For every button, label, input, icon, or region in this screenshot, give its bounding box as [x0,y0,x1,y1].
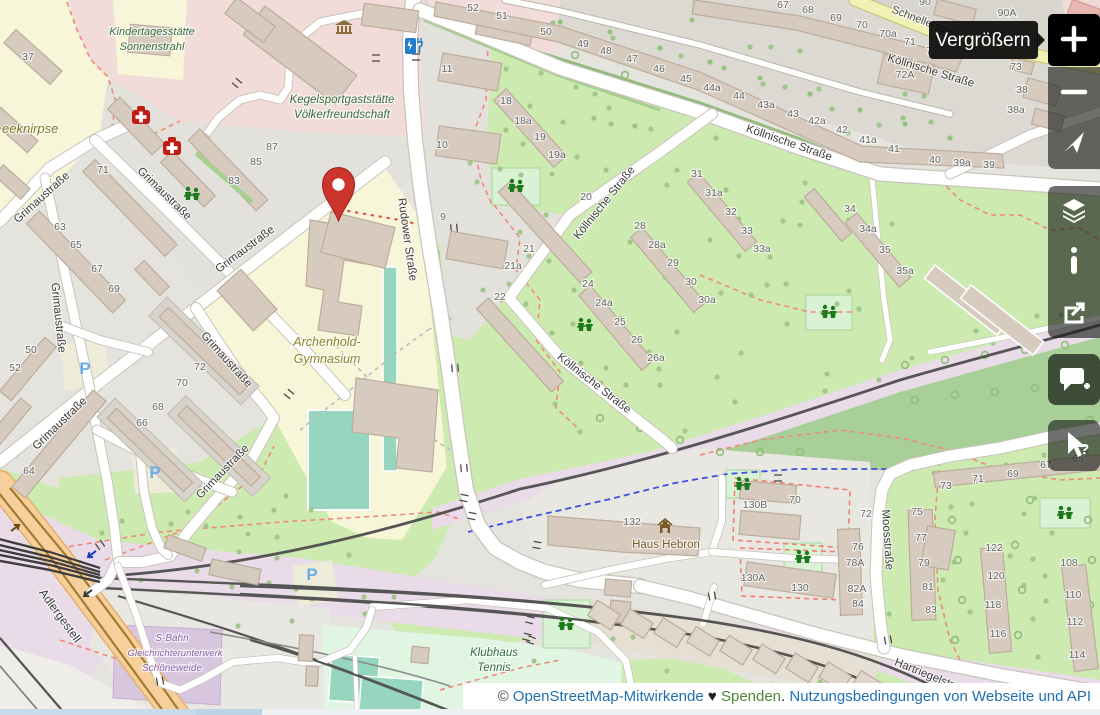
svg-text:43: 43 [787,108,799,120]
svg-text:9: 9 [440,211,446,223]
svg-text:76: 76 [852,541,864,553]
svg-text:40: 40 [929,154,941,166]
svg-text:84: 84 [852,598,864,610]
svg-text:72: 72 [194,361,206,373]
svg-text:37: 37 [22,51,34,63]
svg-text:43a: 43a [757,99,775,111]
svg-text:79: 79 [918,557,930,569]
svg-text:P: P [149,463,160,482]
svg-text:Kegelsportgaststätte: Kegelsportgaststätte [290,94,395,106]
svg-text:65: 65 [70,239,82,251]
svg-text:72: 72 [860,508,872,520]
svg-text:Völkerfreundschaft: Völkerfreundschaft [294,109,391,121]
svg-text:21a: 21a [504,260,522,272]
svg-text:87: 87 [266,141,278,153]
svg-text:73: 73 [1010,61,1022,73]
svg-text:120: 120 [987,570,1005,582]
svg-text:41a: 41a [859,134,877,146]
svg-text:77: 77 [915,532,927,544]
svg-text:69: 69 [108,283,120,295]
svg-text:34a: 34a [859,223,877,235]
svg-text:68: 68 [152,401,164,413]
svg-text:47: 47 [626,53,638,65]
svg-text:70: 70 [789,494,801,506]
svg-text:Kindertagesstätte: Kindertagesstätte [109,26,195,38]
svg-text:42a: 42a [808,115,826,127]
svg-text:Klubhaus: Klubhaus [470,647,518,659]
svg-text:108: 108 [1060,557,1078,569]
svg-text:32: 32 [725,206,737,218]
svg-text:71: 71 [972,473,984,485]
svg-text:25: 25 [614,316,626,328]
svg-text:35a: 35a [896,265,914,277]
svg-text:64: 64 [23,465,35,477]
svg-text:122: 122 [985,542,1003,554]
svg-text:28a: 28a [648,239,666,251]
svg-text:116: 116 [990,628,1007,640]
svg-text:33: 33 [741,225,753,237]
svg-text:44a: 44a [703,82,721,94]
svg-text:10: 10 [436,139,448,151]
svg-text:18: 18 [500,95,512,107]
svg-text:90: 90 [919,0,931,8]
svg-text:78A: 78A [846,557,865,569]
svg-text:70: 70 [856,19,868,31]
svg-text:66: 66 [136,417,148,429]
svg-text:19: 19 [534,131,546,143]
svg-text:24: 24 [582,278,594,290]
svg-text:63: 63 [54,221,66,233]
svg-text:44: 44 [733,90,745,102]
svg-text:26a: 26a [647,352,665,364]
svg-text:31a: 31a [705,187,723,199]
svg-text:68: 68 [802,4,814,16]
svg-text:30: 30 [685,276,697,288]
svg-text:30a: 30a [698,294,716,306]
svg-text:19a: 19a [548,149,566,161]
svg-text:130A: 130A [741,572,766,584]
svg-text:45: 45 [680,73,692,85]
svg-text:Archenhold-: Archenhold- [292,335,360,349]
svg-text:52: 52 [9,362,21,374]
svg-text:11: 11 [442,63,453,75]
svg-text:38: 38 [1016,84,1028,96]
svg-text:22: 22 [494,291,506,303]
svg-text:20: 20 [580,191,592,203]
svg-text:42: 42 [836,124,848,136]
svg-text:67: 67 [777,0,789,11]
svg-text:33a: 33a [753,243,771,255]
svg-text:38a: 38a [1007,104,1025,116]
svg-text:Vergrößern: Vergrößern [935,30,1030,51]
svg-text:24a: 24a [595,297,613,309]
svg-text:50: 50 [25,344,37,356]
svg-text:Schöneweide: Schöneweide [142,663,202,674]
svg-text:73: 73 [940,480,952,492]
svg-text:81: 81 [922,581,934,593]
svg-text:21: 21 [523,243,535,255]
svg-text:82A: 82A [848,583,867,595]
svg-text:Sonnenstrahl: Sonnenstrahl [120,41,185,53]
svg-text:46: 46 [653,63,665,75]
svg-text:29: 29 [667,257,679,269]
svg-text:39: 39 [983,159,995,171]
svg-text:83: 83 [228,175,240,187]
svg-text:39a: 39a [953,157,971,169]
svg-text:P: P [79,359,90,378]
svg-text:75: 75 [911,506,923,518]
svg-text:132: 132 [623,516,641,528]
svg-text:130: 130 [791,582,809,594]
svg-text:69: 69 [830,12,842,24]
svg-text:118: 118 [985,599,1002,611]
svg-text:35: 35 [879,244,891,256]
svg-text:48: 48 [600,45,612,57]
svg-text:112: 112 [1067,616,1084,628]
svg-text:© OpenStreetMap-Mitwirkende ♥: © OpenStreetMap-Mitwirkende ♥ Spenden. N… [498,688,1091,705]
svg-text:130B: 130B [743,499,768,511]
svg-text:71: 71 [904,36,916,48]
svg-text:114: 114 [1069,649,1086,661]
svg-text:85: 85 [250,156,262,168]
svg-text:eeknirpse: eeknirpse [2,121,58,136]
svg-text:Gymnasium: Gymnasium [294,352,361,366]
svg-text:31: 31 [691,168,703,180]
svg-text:Tennis: Tennis [477,662,511,674]
svg-text:18a: 18a [514,115,532,127]
svg-text:70: 70 [176,377,188,389]
svg-text:S-Bahn: S-Bahn [155,633,189,644]
svg-text:51: 51 [496,10,508,22]
svg-text:90A: 90A [998,7,1017,19]
svg-text:Haus Hebron: Haus Hebron [632,539,700,551]
svg-text:72A: 72A [896,69,915,81]
svg-text:26: 26 [631,334,643,346]
svg-text:Gleichrichterunterwerk: Gleichrichterunterwerk [127,648,223,659]
svg-text:83: 83 [925,604,937,616]
svg-text:69: 69 [1007,468,1019,480]
svg-text:?: ? [1080,441,1089,458]
svg-text:49: 49 [577,38,589,50]
svg-text:50: 50 [540,26,552,38]
svg-text:41: 41 [888,143,900,155]
svg-text:71: 71 [97,164,109,176]
svg-text:P: P [306,565,317,584]
svg-text:70a: 70a [879,28,897,40]
svg-text:34: 34 [844,203,856,215]
svg-text:67: 67 [91,263,103,275]
svg-text:110: 110 [1065,589,1082,601]
svg-text:52: 52 [467,2,479,14]
svg-text:28: 28 [634,220,646,232]
